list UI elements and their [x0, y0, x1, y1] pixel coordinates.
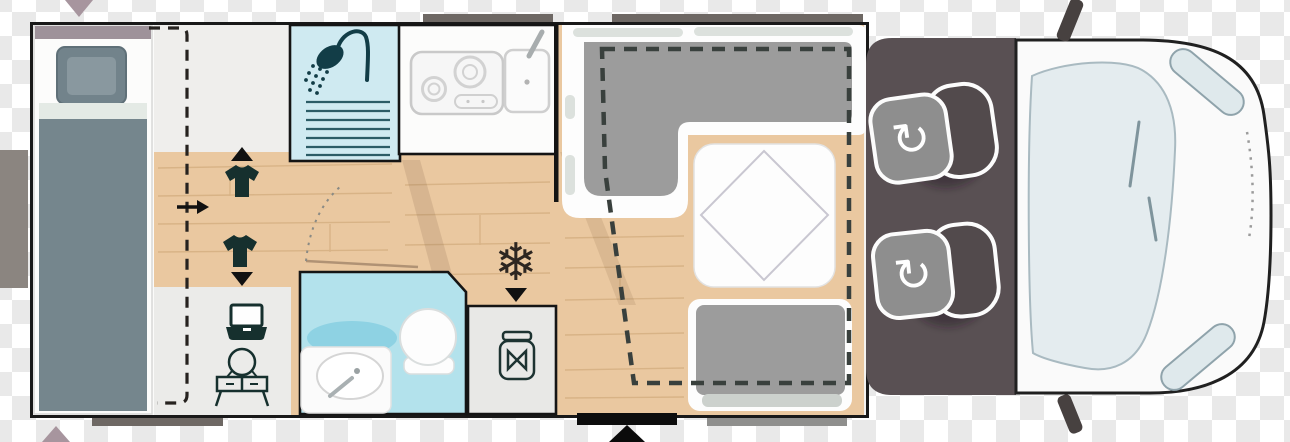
shower-drain-lines: [306, 102, 390, 155]
laptop-icon: [231, 305, 262, 326]
sofa-backrest-top-2: [694, 27, 853, 36]
desk-zone: [154, 287, 291, 415]
down-triangle-marker: [65, 0, 93, 17]
window-bar-kitchen: [423, 14, 553, 23]
bed-blanket: [39, 119, 147, 411]
laptop-touchpad: [243, 328, 251, 331]
stove-icon: [411, 52, 503, 114]
entry-door-arrow-icon: [609, 425, 645, 442]
floorplan-drawing: ❄ ↻: [0, 0, 1290, 442]
side-bench: [688, 299, 852, 411]
dinette-table: [694, 144, 835, 287]
sofa-backrest-left-2: [565, 155, 575, 195]
rear-bed: [34, 26, 152, 414]
sofa-backrest-top-1: [573, 28, 683, 37]
table-top: [694, 144, 835, 287]
up-triangle-marker: [42, 426, 70, 442]
bed-sheet-band: [39, 103, 147, 121]
entry-step: [577, 413, 677, 425]
washbasin-drain: [354, 368, 360, 374]
side-mirror-top: [1055, 0, 1084, 43]
bed-head-wall: [35, 26, 151, 39]
exterior-hatch-bar: [0, 150, 28, 288]
floorplan-canvas: ❄ ↻: [0, 0, 1290, 442]
toilet-icon: [400, 309, 456, 365]
rotate-arrow-icon: ↻: [888, 109, 934, 168]
rotate-arrow-icon: ↻: [891, 246, 935, 304]
shower-cubicle: [290, 25, 400, 161]
shower-room: [290, 25, 400, 161]
sofa-backrest-left-1: [565, 95, 575, 119]
bed-pillow-inner: [67, 57, 116, 95]
bathroom: [300, 272, 466, 414]
bench-backrest-strip: [702, 394, 842, 407]
sofa-back-wall: [554, 24, 559, 202]
pantry-cabinet: [468, 306, 556, 414]
snowflake-fridge-icon: ❄: [494, 233, 538, 293]
window-bar-lounge: [612, 14, 863, 23]
washbasin-icon: [317, 353, 383, 399]
wardrobe-zone: [154, 25, 291, 152]
side-mirror-bottom: [1056, 393, 1084, 435]
pantry: [468, 306, 556, 414]
